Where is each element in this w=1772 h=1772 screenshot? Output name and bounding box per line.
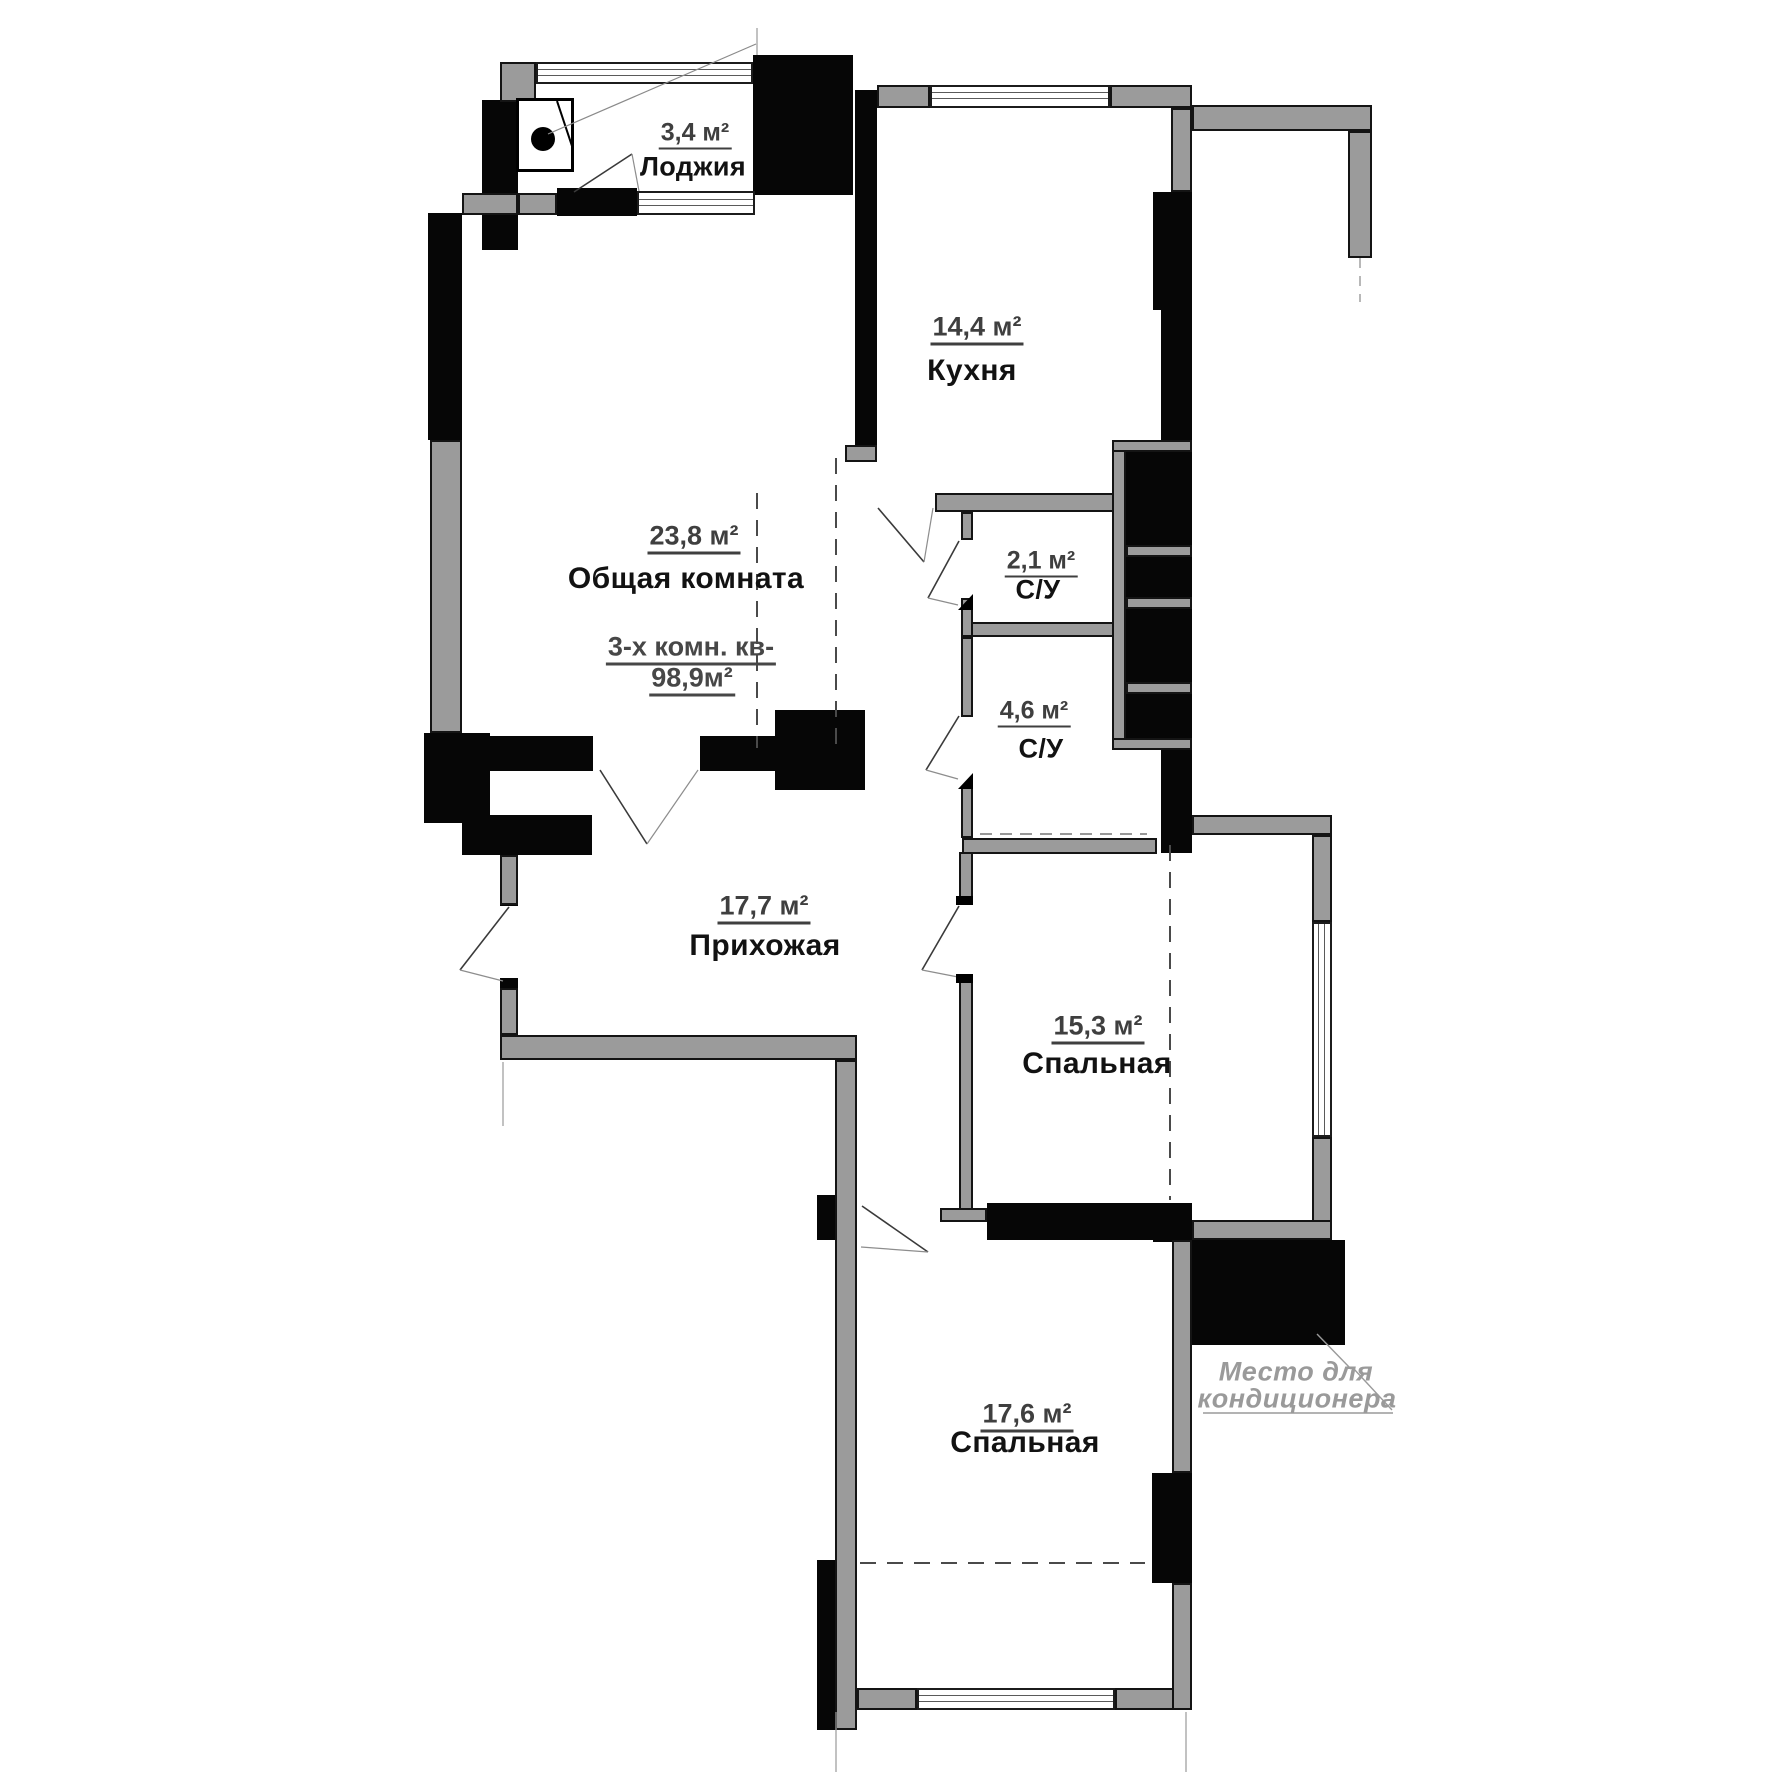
annotation-text: кондиционера — [1198, 1384, 1397, 1414]
room-label-wc1-area: 2,1 м² — [1005, 547, 1078, 576]
room-label-kitchen-name: Кухня — [927, 354, 1017, 388]
annotation-text: Место для — [1219, 1357, 1373, 1387]
room-label-living-name: Общая комната — [568, 562, 804, 596]
room-name: С/У — [1016, 575, 1061, 605]
room-area: 17,7 м² — [717, 891, 810, 925]
room-label-hall-area: 17,7 м² — [717, 891, 810, 922]
apartment-type-label: 3-х комн. кв- — [606, 632, 776, 663]
room-area: 4,6 м² — [998, 697, 1071, 728]
room-area: 3,4 м² — [659, 119, 732, 150]
room-label-wc2-area: 4,6 м² — [998, 697, 1071, 726]
room-label-wc2-name: С/У — [1019, 734, 1064, 765]
room-name: Общая комната — [568, 562, 804, 595]
room-area: 23,8 м² — [647, 521, 740, 555]
room-label-bedroom-south-name: Спальная — [950, 1426, 1099, 1460]
room-area: 15,3 м² — [1051, 1011, 1144, 1045]
door-and-axis-lines — [0, 0, 1772, 1772]
room-label-bedroom-east-name: Спальная — [1022, 1047, 1171, 1081]
room-name: С/У — [1019, 734, 1064, 764]
room-label-loggia-area: 3,4 м² — [659, 119, 732, 148]
ac-annotation-line2: кондиционера — [1198, 1384, 1397, 1415]
room-label-hall-name: Прихожая — [689, 929, 840, 963]
room-label-bedroom-east-area: 15,3 м² — [1051, 1011, 1144, 1042]
room-name: Лоджия — [640, 152, 746, 182]
apartment-type: 3-х комн. кв- — [606, 632, 776, 666]
floor-plan: 3,4 м² Лоджия 14,4 м² Кухня 23,8 м² Обща… — [0, 0, 1772, 1772]
room-name: Спальная — [950, 1426, 1099, 1459]
room-name: Спальная — [1022, 1047, 1171, 1080]
apartment-total-area-label: 98,9м² — [649, 663, 735, 694]
room-label-wc1-name: С/У — [1016, 575, 1061, 606]
room-label-living-area: 23,8 м² — [647, 521, 740, 552]
room-name: Кухня — [927, 354, 1017, 387]
apartment-total-area: 98,9м² — [649, 663, 735, 697]
room-area: 2,1 м² — [1005, 547, 1078, 578]
room-area: 14,4 м² — [930, 312, 1023, 346]
room-name: Прихожая — [689, 929, 840, 962]
room-label-loggia-name: Лоджия — [640, 152, 746, 183]
room-label-bedroom-south-area: 17,6 м² — [980, 1399, 1073, 1430]
room-label-kitchen-area: 14,4 м² — [930, 312, 1023, 343]
